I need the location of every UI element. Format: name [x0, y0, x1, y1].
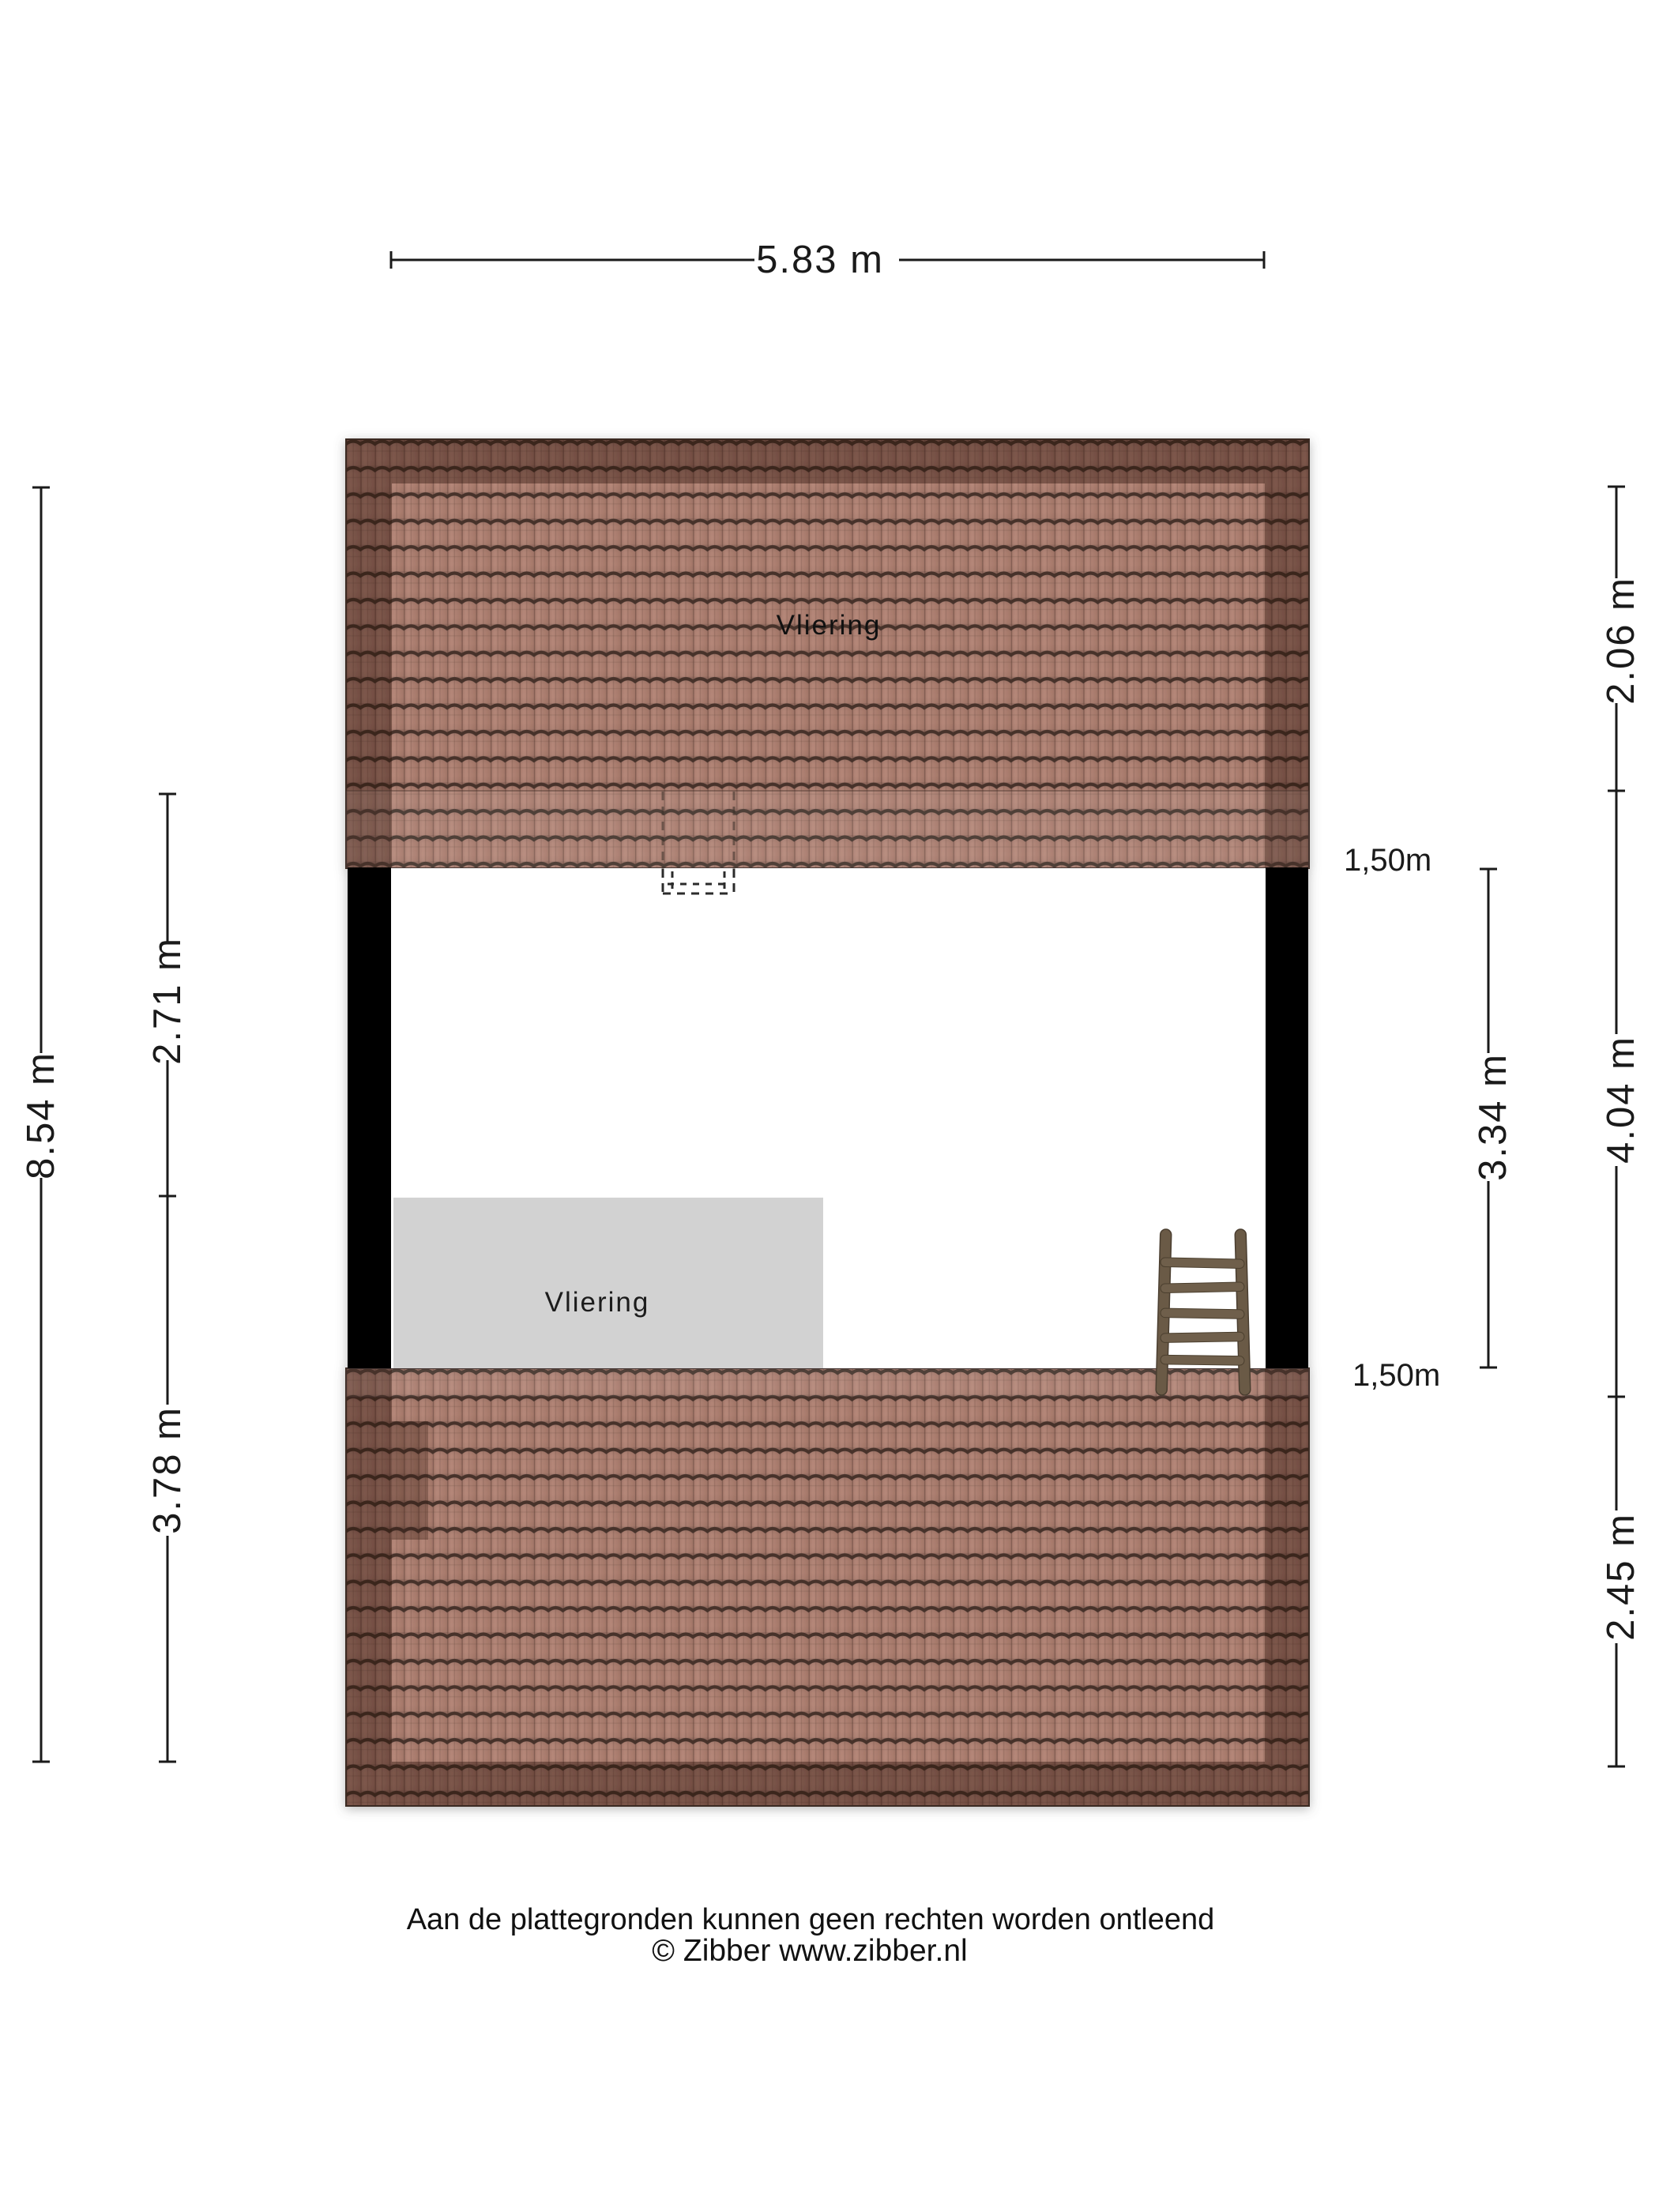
- svg-text:2.45 m: 2.45 m: [1600, 1513, 1642, 1641]
- svg-text:© Zibber www.zibber.nl: © Zibber www.zibber.nl: [652, 1934, 967, 1968]
- svg-text:8.54 m: 8.54 m: [20, 1051, 62, 1179]
- svg-text:1,50m: 1,50m: [1352, 1358, 1440, 1393]
- svg-text:4.04 m: 4.04 m: [1600, 1036, 1642, 1164]
- svg-text:5.83 m: 5.83 m: [756, 239, 884, 281]
- svg-text:Vliering: Vliering: [777, 610, 882, 641]
- svg-text:1,50m: 1,50m: [1344, 843, 1431, 878]
- svg-text:3.78 m: 3.78 m: [146, 1406, 189, 1534]
- svg-text:Aan de plattegronden kunnen ge: Aan de plattegronden kunnen geen rechten…: [407, 1903, 1215, 1936]
- svg-text:2.06 m: 2.06 m: [1600, 577, 1642, 705]
- svg-text:3.34 m: 3.34 m: [1472, 1053, 1514, 1181]
- svg-text:Vliering: Vliering: [545, 1287, 650, 1318]
- svg-text:2.71 m: 2.71 m: [146, 937, 189, 1065]
